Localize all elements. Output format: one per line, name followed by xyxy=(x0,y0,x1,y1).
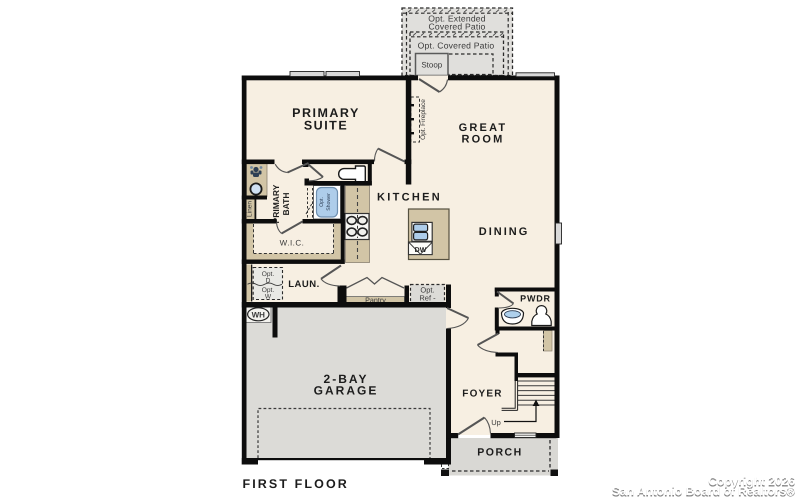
svg-text:San Antonio Board of Realtors®: San Antonio Board of Realtors® xyxy=(612,484,795,498)
svg-text:WH: WH xyxy=(252,310,266,319)
svg-text:ROOM: ROOM xyxy=(461,134,504,146)
svg-text:FIRST FLOOR: FIRST FLOOR xyxy=(243,477,349,491)
svg-text:D: D xyxy=(266,278,271,285)
svg-text:Opt. Covered Patio: Opt. Covered Patio xyxy=(418,41,495,51)
svg-text:W: W xyxy=(265,293,272,300)
svg-text:LAUN.: LAUN. xyxy=(288,279,320,290)
svg-text:Up: Up xyxy=(491,418,501,427)
svg-text:GARAGE: GARAGE xyxy=(314,384,379,398)
svg-text:Linen: Linen xyxy=(247,201,254,217)
svg-text:SUITE: SUITE xyxy=(304,119,348,133)
svg-text:DW: DW xyxy=(415,247,427,254)
svg-text:PWDR: PWDR xyxy=(520,294,551,304)
svg-text:PORCH: PORCH xyxy=(477,447,522,459)
svg-text:W.I.C.: W.I.C. xyxy=(280,239,305,248)
svg-text:PRIMARY: PRIMARY xyxy=(271,184,281,223)
svg-text:KITCHEN: KITCHEN xyxy=(377,192,442,204)
svg-text:GREAT: GREAT xyxy=(459,122,508,134)
svg-text:Ref -: Ref - xyxy=(419,294,436,303)
svg-text:Shower: Shower xyxy=(326,193,332,211)
svg-text:Stoop: Stoop xyxy=(421,61,442,70)
svg-text:Opt.: Opt. xyxy=(319,197,325,207)
svg-text:Opt. Fireplace: Opt. Fireplace xyxy=(420,99,427,140)
svg-text:Covered Patio: Covered Patio xyxy=(428,22,485,32)
svg-text:BATH: BATH xyxy=(281,193,291,216)
svg-text:DINING: DINING xyxy=(479,226,530,238)
svg-text:FOYER: FOYER xyxy=(462,389,502,400)
